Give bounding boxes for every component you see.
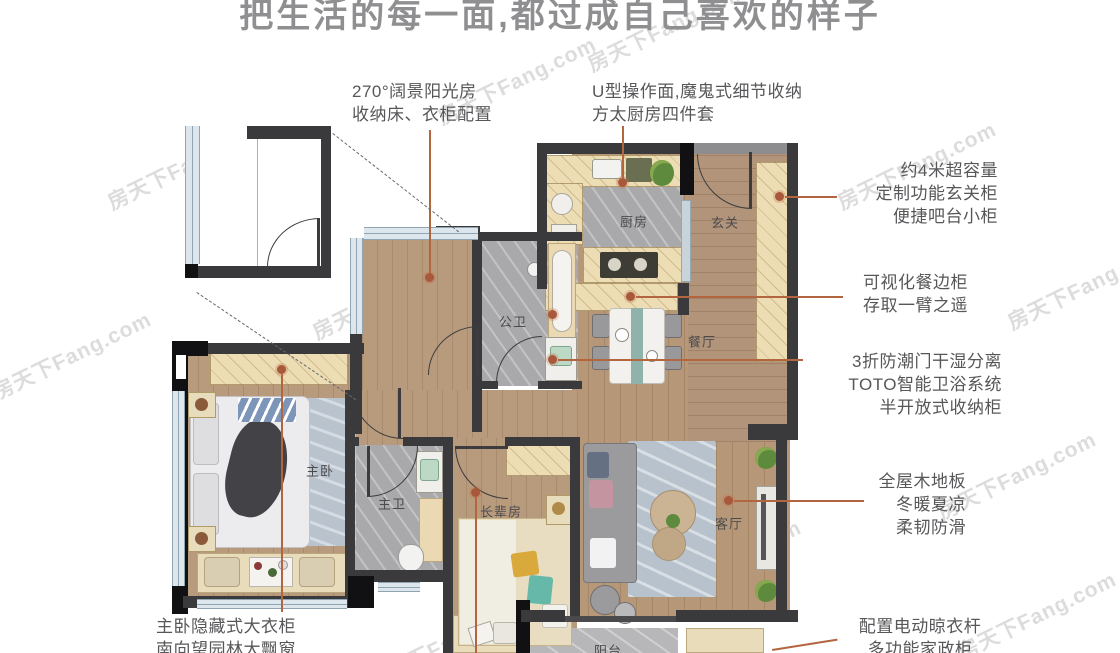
- sunroom-detail-inset: [185, 123, 332, 292]
- door-leaf: [367, 446, 370, 496]
- sofa-cushion: [587, 452, 609, 478]
- watermark: 房天下Fang.com: [0, 304, 156, 407]
- bay-seat-cushion: [204, 557, 240, 587]
- annotation-line: 柔韧防滑: [820, 516, 966, 539]
- door-leaf: [317, 218, 320, 266]
- wall: [345, 437, 359, 446]
- wall: [521, 610, 565, 622]
- coffee-table: [652, 527, 686, 561]
- teacup-icon: [254, 562, 262, 570]
- callout-dot: [775, 192, 784, 201]
- callout-line: [772, 639, 838, 651]
- bay-cushion: [493, 622, 517, 644]
- burner-icon: [634, 258, 647, 271]
- annotation-line: 定制功能玄关柜: [818, 182, 998, 205]
- callout-dot: [471, 488, 480, 497]
- striped-blanket: [238, 398, 296, 422]
- pillow-teal: [527, 575, 554, 605]
- kitchen-bowl: [551, 193, 573, 215]
- table-runner: [631, 308, 643, 384]
- plate-icon: [615, 328, 629, 342]
- plate-icon: [278, 560, 288, 570]
- bathtub: [552, 250, 572, 332]
- annotation-wood-floor: 全屋木地板 冬暖夏凉 柔韧防滑: [820, 470, 966, 539]
- callout-line: [636, 296, 843, 298]
- wall: [505, 437, 580, 446]
- annotation-line: 主卧隐藏式大衣柜: [142, 615, 310, 638]
- annotation-line: 便捷吧台小柜: [818, 205, 998, 228]
- lamp-icon: [195, 532, 208, 545]
- window: [185, 126, 200, 264]
- sofa-throw: [590, 538, 616, 568]
- wall: [787, 143, 798, 433]
- master-basin: [420, 459, 439, 481]
- tv-icon: [761, 494, 766, 560]
- annotation-line: 存取一臂之遥: [820, 294, 968, 317]
- window: [172, 391, 185, 586]
- annotation-line: 收纳床、衣柜配置: [352, 103, 492, 126]
- door-leaf: [476, 326, 479, 374]
- annotation-line: 全屋木地板: [820, 470, 966, 493]
- wall: [321, 126, 331, 278]
- room-label-public-bath: 公卫: [499, 312, 527, 331]
- wall: [247, 126, 331, 139]
- callout-dot: [548, 355, 557, 364]
- callout-line: [475, 497, 477, 653]
- callout-dot: [618, 178, 627, 187]
- dining-chair: [664, 346, 682, 370]
- wall: [570, 437, 580, 618]
- annotation-line: 方太厨房四件套: [592, 103, 803, 126]
- room-label-master-bedroom: 主卧: [306, 461, 334, 480]
- annotation-bathroom: 3折防潮门干湿分离 TOTO智能卫浴系统 半开放式收纳柜: [806, 350, 1002, 419]
- wall: [680, 143, 694, 195]
- annotation-sunroom: 270°阔景阳光房 收纳床、衣柜配置: [352, 80, 492, 126]
- room-label-elder-room: 长辈房: [480, 502, 522, 521]
- wall: [537, 143, 547, 289]
- cutting-board: [626, 158, 652, 182]
- room-label-entry: 玄关: [711, 213, 739, 232]
- wall: [678, 283, 689, 315]
- page-title: 把生活的每一面,都过成自己喜欢的样子: [0, 0, 1120, 37]
- wall: [197, 266, 331, 278]
- wall: [676, 610, 798, 622]
- door-leaf: [749, 152, 752, 208]
- burner-icon: [608, 258, 621, 271]
- annotation-line: 3折防潮门干湿分离: [806, 350, 1002, 373]
- annotation-line: 可视化餐边柜: [820, 271, 968, 294]
- door-arc: [267, 218, 320, 267]
- room-label-dining: 餐厅: [688, 332, 716, 351]
- lamp-icon: [195, 398, 208, 411]
- plant-icon: [666, 514, 680, 528]
- wall: [472, 232, 582, 241]
- callout-line: [281, 374, 283, 612]
- annotation-line: 配置电动晾衣杆: [840, 615, 1000, 638]
- inset-divider: [257, 139, 258, 266]
- plant-icon: [755, 580, 777, 602]
- door-leaf: [398, 388, 401, 438]
- annotation-kitchen: U型操作面,魔鬼式细节收纳 方太厨房四件套: [592, 80, 803, 126]
- window: [378, 582, 420, 592]
- wall: [348, 576, 374, 608]
- floor-plan-page: 房天下Fang.com 房天下Fang.com 房天下Fang.com 房天下F…: [0, 0, 1120, 653]
- elder-wardrobe: [506, 444, 574, 476]
- window: [197, 599, 347, 609]
- lamp-icon: [552, 502, 565, 515]
- balcony-slider: [565, 616, 680, 622]
- pillow-yellow: [510, 550, 539, 577]
- wall-niche: [176, 355, 186, 379]
- dining-chair: [664, 314, 682, 338]
- room-label-balcony: 阳台: [594, 641, 622, 653]
- door-leaf: [455, 446, 508, 449]
- wall: [748, 424, 798, 440]
- kitchen-sink: [592, 159, 622, 179]
- wall: [345, 390, 355, 600]
- callout-dot: [548, 310, 557, 319]
- window: [350, 238, 363, 334]
- annotation-laundry: 配置电动晾衣杆 多功能家政柜: [840, 615, 1000, 653]
- callout-dot: [277, 365, 286, 374]
- callout-dot: [425, 273, 434, 282]
- callout-line: [622, 126, 624, 182]
- dining-chair: [592, 346, 610, 370]
- callout-line: [429, 130, 431, 278]
- room-label-master-bath: 主卫: [378, 494, 406, 513]
- window: [364, 227, 478, 240]
- annotation-entry-cabinet: 约4米超容量 定制功能玄关柜 便捷吧台小柜: [818, 159, 998, 228]
- wall: [516, 600, 530, 653]
- annotation-line: U型操作面,魔鬼式细节收纳: [592, 80, 803, 103]
- bay-seat-cushion: [299, 557, 335, 587]
- floor-utility: [686, 628, 764, 653]
- annotation-line: 半开放式收纳柜: [806, 396, 1002, 419]
- callout-dot: [626, 292, 635, 301]
- dining-chair: [592, 314, 610, 338]
- plant-icon: [755, 447, 777, 469]
- plant-icon: [650, 160, 674, 186]
- sofa-cushion: [589, 480, 613, 508]
- annotation-line: 270°阔景阳光房: [352, 80, 492, 103]
- annotation-sideboard: 可视化餐边柜 存取一臂之遥: [820, 271, 968, 317]
- room-label-kitchen: 厨房: [620, 212, 648, 231]
- glass-partition: [681, 200, 691, 282]
- toilet: [398, 544, 424, 572]
- wall: [538, 381, 582, 389]
- wall: [443, 437, 453, 653]
- annotation-line: 约4米超容量: [818, 159, 998, 182]
- watermark: 房天下Fang.com: [1002, 234, 1120, 337]
- callout-line: [558, 359, 803, 361]
- annotation-line: 南向望园林大飘窗: [142, 638, 310, 653]
- inset-connector-line: [332, 133, 459, 232]
- callout-dot: [724, 496, 733, 505]
- wall: [776, 436, 787, 618]
- wall: [537, 143, 694, 154]
- teacup-icon: [268, 568, 277, 577]
- annotation-line: TOTO智能卫浴系统: [806, 373, 1002, 396]
- room-label-living-room: 客厅: [715, 514, 743, 533]
- wall: [472, 381, 498, 389]
- wall: [694, 143, 798, 154]
- annotation-line: 冬暖夏凉: [820, 493, 966, 516]
- annotation-line: 多功能家政柜: [840, 638, 1000, 653]
- annotation-master-bedroom: 主卧隐藏式大衣柜 南向望园林大飘窗: [142, 615, 310, 653]
